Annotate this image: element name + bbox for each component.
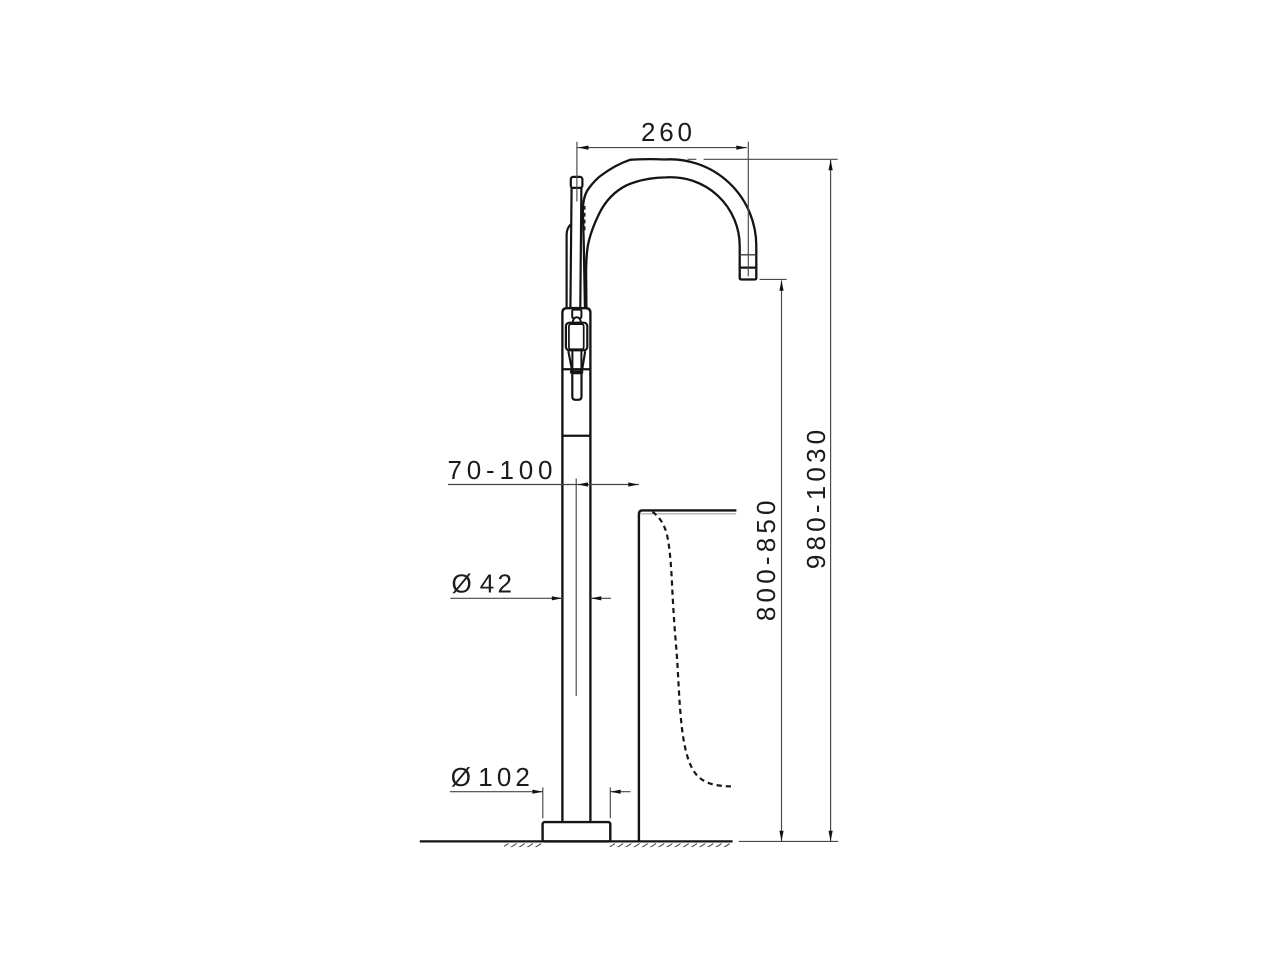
svg-text:70-100: 70-100 [448,455,558,485]
svg-text:42: 42 [480,569,515,599]
svg-text:Ø: Ø [451,762,471,792]
svg-text:980-1030: 980-1030 [801,426,831,569]
svg-text:102: 102 [478,762,534,792]
svg-text:800-850: 800-850 [751,496,781,621]
svg-text:260: 260 [641,117,696,147]
svg-text:Ø: Ø [452,569,472,599]
